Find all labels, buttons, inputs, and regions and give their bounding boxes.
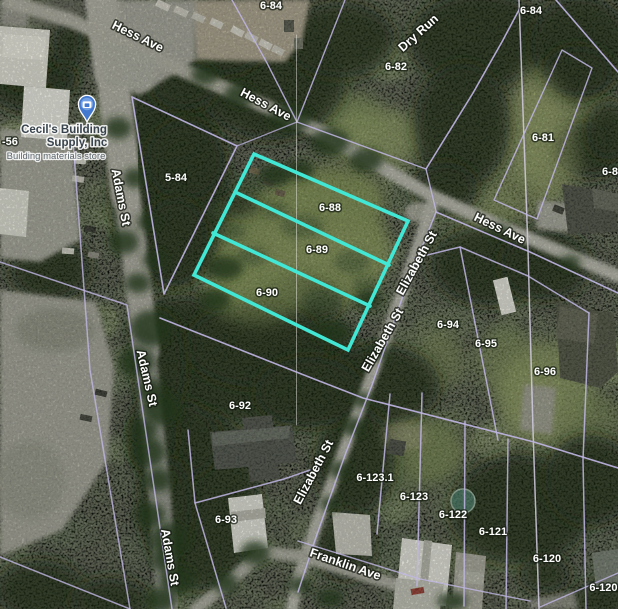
svg-text:6-120: 6-120 xyxy=(533,553,561,565)
svg-text:6-8: 6-8 xyxy=(602,166,618,178)
svg-text:6-84: 6-84 xyxy=(260,0,283,12)
svg-text:5-84: 5-84 xyxy=(165,172,188,184)
svg-text:6-90: 6-90 xyxy=(256,287,278,299)
svg-text:6-123.1: 6-123.1 xyxy=(356,472,393,484)
svg-text:6-82: 6-82 xyxy=(385,61,407,73)
svg-text:6-121: 6-121 xyxy=(479,526,507,538)
svg-text:6-89: 6-89 xyxy=(306,244,328,256)
svg-text:6-93: 6-93 xyxy=(215,514,237,526)
svg-text:Building materials store: Building materials store xyxy=(7,151,106,162)
svg-text:Cecil's Building: Cecil's Building xyxy=(21,124,107,136)
svg-text:6-84: 6-84 xyxy=(520,5,543,17)
svg-text:6-123: 6-123 xyxy=(400,491,428,503)
svg-text:6-122: 6-122 xyxy=(439,509,467,521)
svg-text:6-95: 6-95 xyxy=(475,338,497,350)
svg-text:Supply, Inc: Supply, Inc xyxy=(47,137,108,149)
svg-text:6-94: 6-94 xyxy=(437,319,460,331)
svg-text:6-92: 6-92 xyxy=(229,400,251,412)
svg-text:6-120.: 6-120. xyxy=(589,582,618,594)
svg-text:6-88: 6-88 xyxy=(319,202,341,214)
svg-text:6-96: 6-96 xyxy=(534,366,556,378)
svg-text:-56: -56 xyxy=(2,136,18,148)
svg-text:6-81: 6-81 xyxy=(532,132,554,144)
